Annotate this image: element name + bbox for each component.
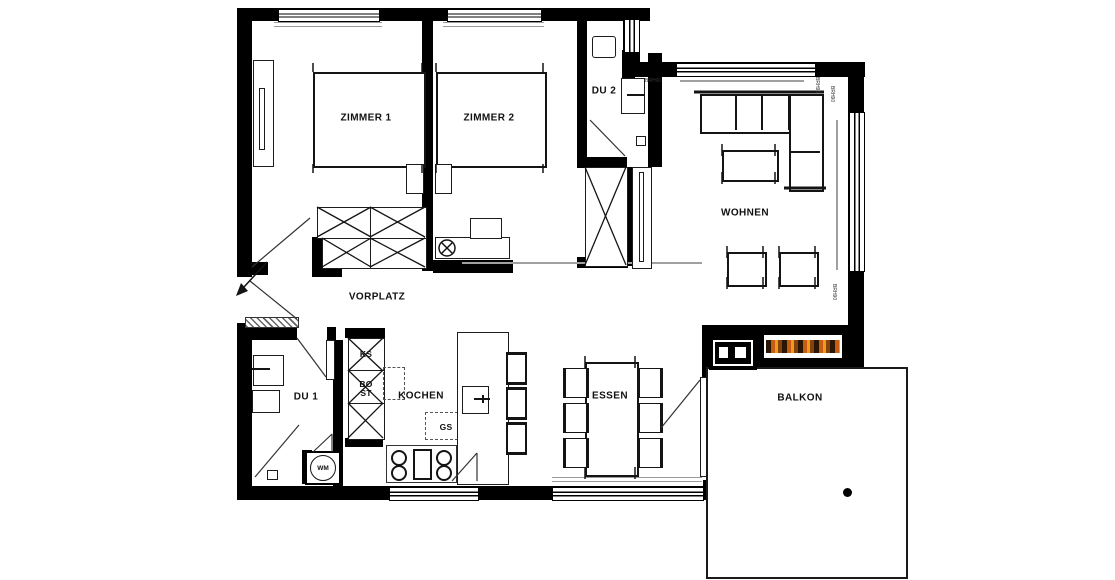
drain-du2	[636, 136, 646, 146]
fireplace-square-1	[719, 347, 728, 358]
room-label-essen: ESSEN	[592, 391, 628, 402]
sill-zimmer2	[443, 22, 544, 27]
room-label-du1: DU 1	[294, 392, 318, 403]
appliance-label-st: ST	[360, 388, 371, 398]
bar-stool	[506, 422, 527, 455]
window-essen	[552, 487, 704, 501]
appliance-label-ks: KS	[360, 349, 372, 359]
curtain-line-right	[836, 120, 838, 270]
room-label-kochen: KOCHEN	[398, 391, 444, 402]
closet-tall	[585, 167, 628, 267]
wardrobe-zimmer1-bar	[259, 88, 265, 150]
closet-cell	[322, 238, 373, 269]
window-annotation: BRH90	[814, 77, 820, 93]
wall-du2-right	[648, 53, 662, 167]
wall-kitchen-cap-top	[345, 328, 385, 338]
basin-du2	[621, 78, 645, 114]
wall-du2-step	[622, 50, 635, 78]
floor-line-vorplatz	[462, 262, 702, 264]
kitchen-cabinet-x	[348, 403, 385, 440]
curtain-line-top	[680, 80, 804, 82]
toilet-du1	[252, 390, 280, 413]
bar-stool	[506, 387, 527, 420]
room-label-wohnen: WOHNEN	[721, 208, 769, 219]
window-annotation: BRH90	[829, 86, 835, 102]
floor-plan: WM	[0, 0, 1115, 580]
wm-label: WM	[317, 465, 329, 472]
wall-du1-top	[237, 327, 297, 340]
room-label-zimmer1: ZIMMER 1	[341, 113, 392, 124]
bar-stool	[506, 352, 527, 385]
fireplace-square-2	[735, 347, 746, 358]
closet-cell	[370, 207, 427, 239]
window-annotation: BRH90	[831, 284, 837, 300]
sofa-vertical	[789, 94, 824, 192]
closet-cell	[317, 207, 373, 239]
window-wohnen-right	[849, 112, 865, 272]
balcony-column-dot	[843, 488, 852, 497]
nightstand-zimmer2	[435, 164, 452, 194]
dining-chair	[637, 438, 663, 468]
dining-chair	[637, 368, 663, 398]
dining-chair	[563, 403, 589, 433]
window-annotation: BRH90	[645, 78, 661, 84]
dining-table	[585, 362, 639, 477]
wm-circle: WM	[310, 455, 336, 481]
room-label-vorplatz: VORPLATZ	[349, 292, 405, 303]
dining-chair	[563, 438, 589, 468]
sill-zimmer1	[274, 22, 382, 27]
dining-chair	[637, 403, 663, 433]
window-wohnen-top	[676, 63, 816, 77]
fireplace-fire	[766, 340, 840, 353]
basin-du1	[253, 355, 284, 386]
desk-zimmer2	[435, 237, 510, 259]
window-zimmer2	[447, 9, 542, 22]
toilet-du2	[592, 36, 616, 58]
door-leaf-du1	[326, 340, 335, 380]
entrance-door-leaf	[245, 317, 299, 328]
nightstand-zimmer1	[406, 164, 424, 194]
wm-box: WM	[305, 451, 341, 485]
room-label-zimmer2: ZIMMER 2	[464, 113, 515, 124]
window-notch	[624, 19, 640, 53]
wall-entrance-stub	[252, 262, 268, 275]
oven	[413, 449, 432, 480]
sink	[462, 386, 489, 414]
wall-left	[237, 8, 252, 500]
window-kitchen	[389, 487, 479, 501]
room-label-balkon: BALKON	[777, 393, 822, 404]
coffee-table	[722, 150, 779, 182]
armchair-2	[779, 252, 819, 287]
window-zimmer1	[278, 9, 380, 22]
appliance-label-gs: GS	[440, 422, 453, 432]
side-table-zimmer2	[470, 218, 502, 239]
wardrobe-hall-bar	[639, 172, 644, 262]
closet-cell	[370, 238, 427, 269]
dining-chair	[563, 368, 589, 398]
armchair-1	[727, 252, 767, 287]
drain-du1	[267, 470, 278, 480]
balcony-door-frame	[700, 377, 707, 477]
wall-zimmer2-du2	[577, 21, 587, 168]
room-label-du2: DU 2	[592, 86, 616, 97]
sill-essen	[552, 477, 702, 482]
wall-du1-cap	[327, 327, 336, 340]
